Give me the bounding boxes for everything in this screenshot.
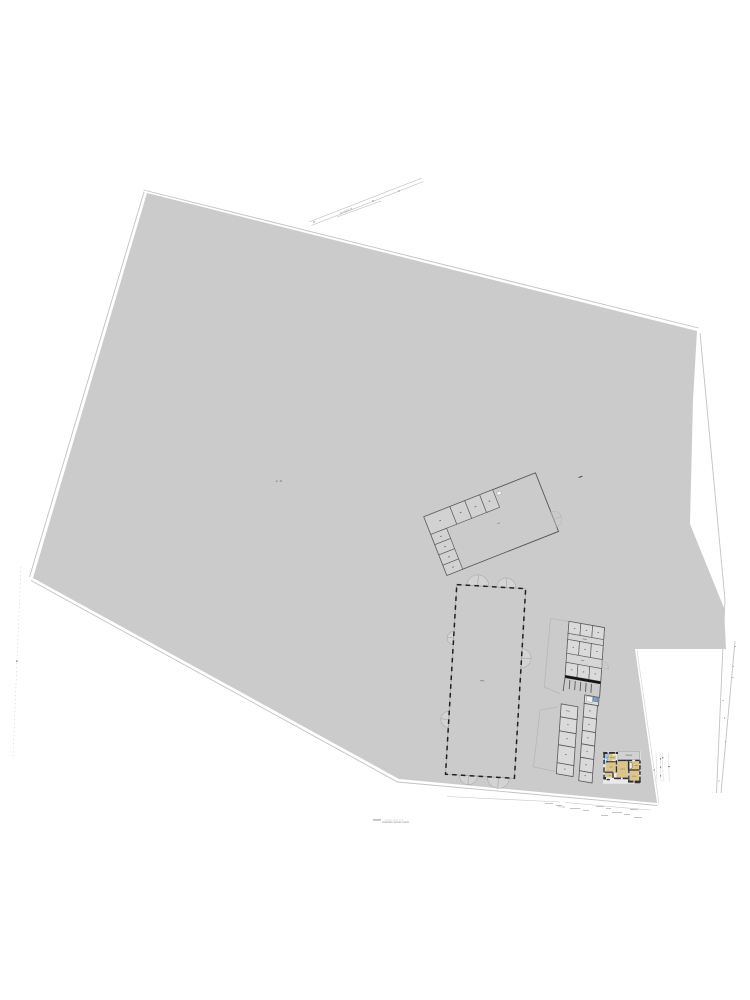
svg-text:xxxxx xxxx xxx: xxxxx xxxx xxx <box>385 820 404 822</box>
